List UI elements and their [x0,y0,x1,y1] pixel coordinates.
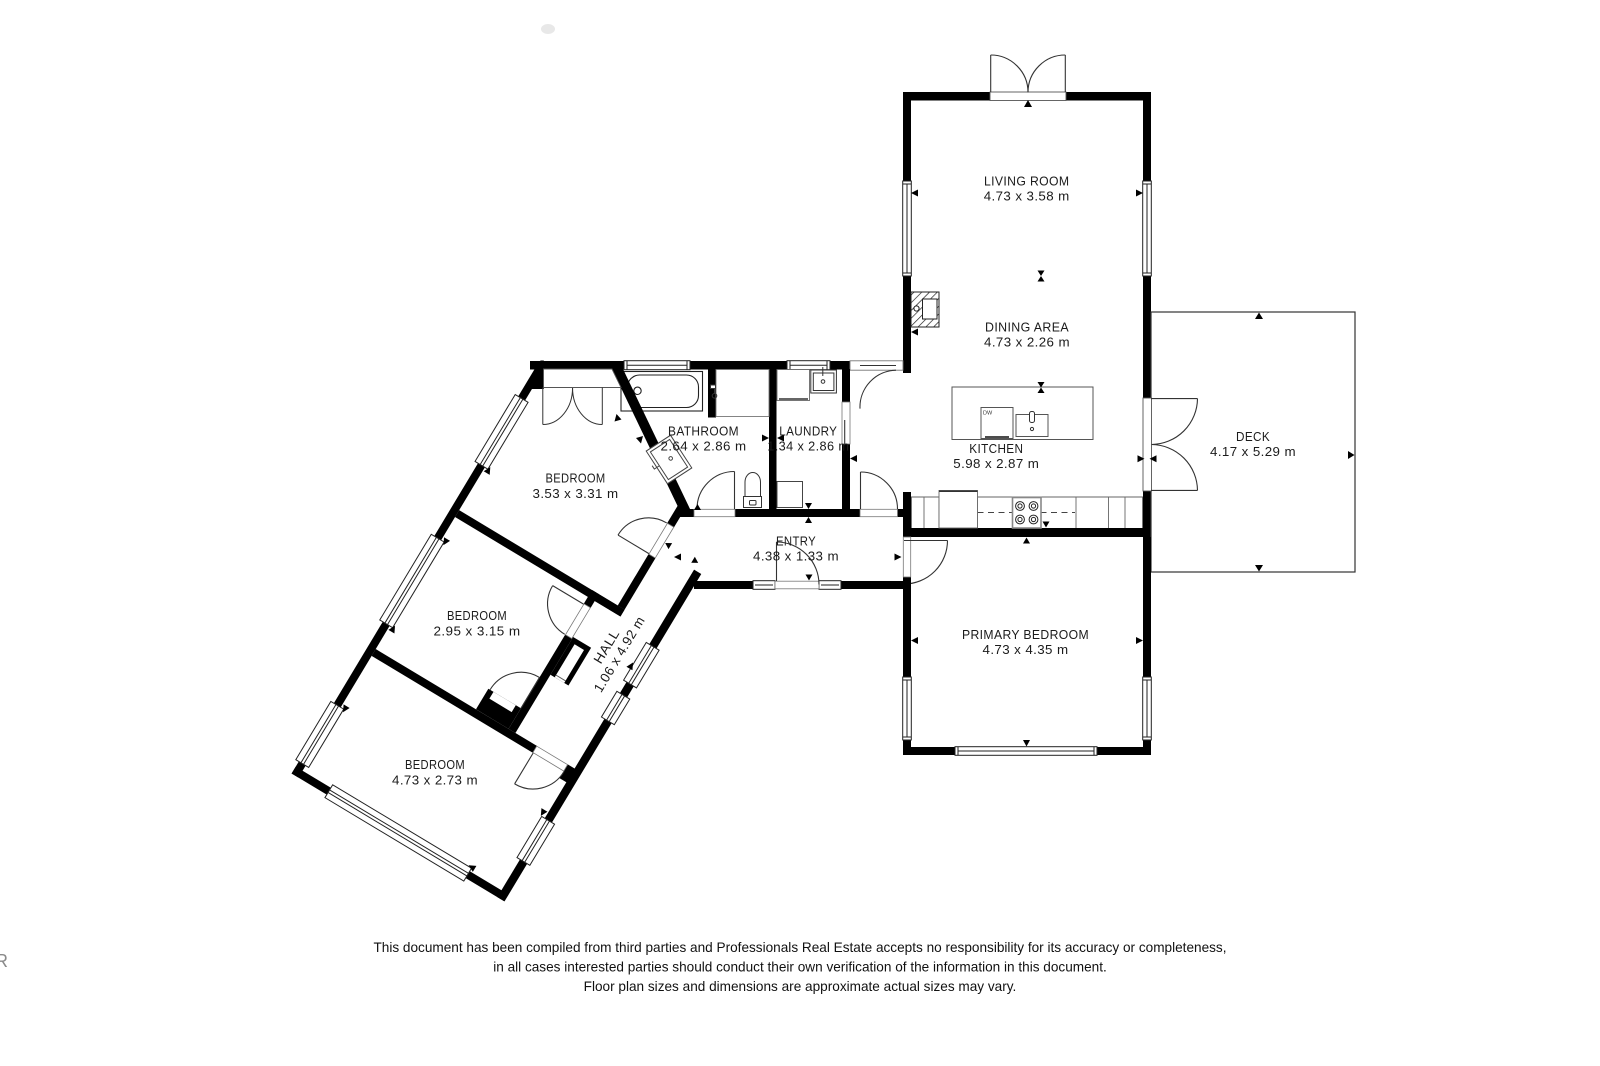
svg-text:4.73 x 2.73 m: 4.73 x 2.73 m [392,772,478,787]
svg-text:BATHROOM: BATHROOM [668,424,739,439]
svg-text:4.73 x 3.58 m: 4.73 x 3.58 m [984,189,1070,204]
svg-text:PRIMARY BEDROOM: PRIMARY BEDROOM [962,627,1089,642]
svg-text:4.38 x 1.33 m: 4.38 x 1.33 m [753,549,839,564]
svg-text:This document has been compile: This document has been compiled from thi… [373,940,1226,955]
svg-text:ENTRY: ENTRY [776,534,816,549]
svg-text:Floor plan sizes and dimension: Floor plan sizes and dimensions are appr… [584,979,1017,994]
svg-text:2.64 x 2.86 m: 2.64 x 2.86 m [661,439,747,454]
svg-text:2.95 x 3.15 m: 2.95 x 3.15 m [434,623,521,638]
svg-text:BEDROOM: BEDROOM [546,471,606,486]
svg-text:KITCHEN: KITCHEN [969,441,1023,456]
svg-text:BEDROOM: BEDROOM [447,608,507,623]
svg-text:5.98 x 2.87 m: 5.98 x 2.87 m [953,456,1039,471]
svg-text:DECK: DECK [1236,429,1270,444]
svg-text:1.34 x 2.86 m: 1.34 x 2.86 m [767,439,849,454]
svg-text:LIVING ROOM: LIVING ROOM [984,173,1070,188]
svg-text:LAUNDRY: LAUNDRY [779,424,837,439]
svg-text:3.53 x 3.31 m: 3.53 x 3.31 m [533,486,619,501]
svg-text:DINING AREA: DINING AREA [985,320,1069,335]
svg-text:in all cases interested partie: in all cases interested parties should c… [493,960,1107,975]
svg-text:BEDROOM: BEDROOM [405,757,465,772]
svg-text:R: R [0,951,8,971]
svg-text:4.73 x 4.35 m: 4.73 x 4.35 m [983,642,1069,657]
svg-text:DW: DW [983,411,993,417]
svg-text:4.17 x 5.29 m: 4.17 x 5.29 m [1210,444,1296,459]
svg-text:4.73 x 2.26 m: 4.73 x 2.26 m [984,335,1070,350]
